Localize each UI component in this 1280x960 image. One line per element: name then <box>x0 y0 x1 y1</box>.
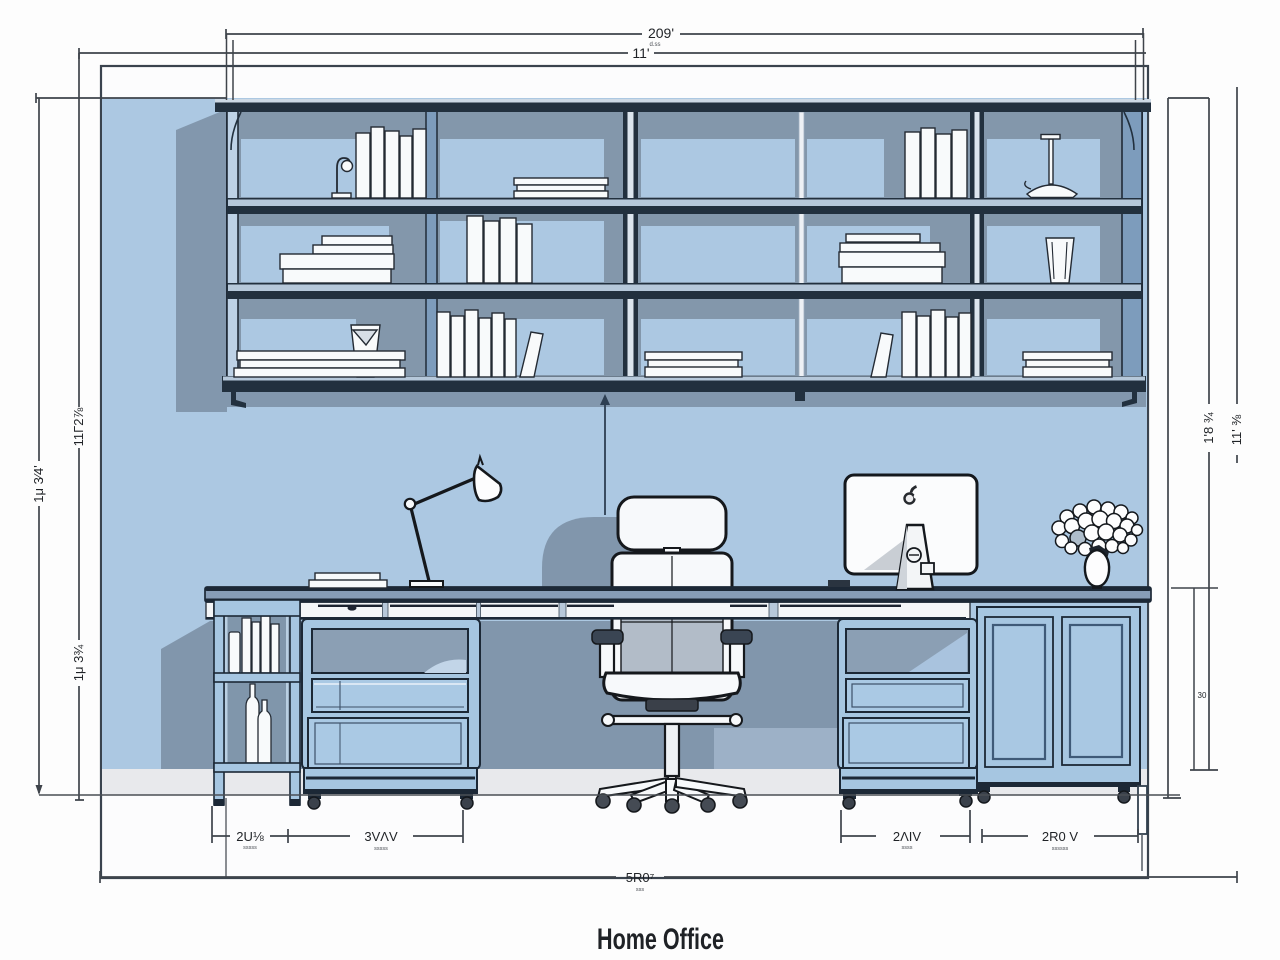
svg-text:Home Office: Home Office <box>597 923 724 956</box>
svg-text:d.ss: d.ss <box>649 42 660 48</box>
svg-text:2R0 V: 2R0 V <box>1042 829 1078 844</box>
svg-text:209': 209' <box>648 25 674 41</box>
svg-text:1'8 ¾: 1'8 ¾ <box>1201 412 1216 444</box>
svg-text:11': 11' <box>632 45 649 61</box>
svg-text:sssss: sssss <box>243 845 257 851</box>
svg-text:ssssss: ssssss <box>1052 846 1069 852</box>
svg-text:sssss: sssss <box>374 846 388 852</box>
svg-text:1μ 3⁄4': 1μ 3⁄4' <box>31 465 46 502</box>
svg-text:11' ⅜: 11' ⅜ <box>1229 415 1244 446</box>
svg-text:2U⅛: 2U⅛ <box>236 829 264 844</box>
svg-text:1μ 3¾: 1μ 3¾ <box>71 645 86 682</box>
svg-text:11Γ2⅞: 11Γ2⅞ <box>71 407 86 446</box>
svg-text:2ΛΙV: 2ΛΙV <box>893 829 922 844</box>
svg-text:ssss: ssss <box>902 845 913 851</box>
svg-text:sss: sss <box>636 887 645 893</box>
svg-text:3VΛV: 3VΛV <box>364 829 398 844</box>
svg-text:5R0⁷: 5R0⁷ <box>626 870 655 885</box>
svg-text:30: 30 <box>1198 691 1207 700</box>
